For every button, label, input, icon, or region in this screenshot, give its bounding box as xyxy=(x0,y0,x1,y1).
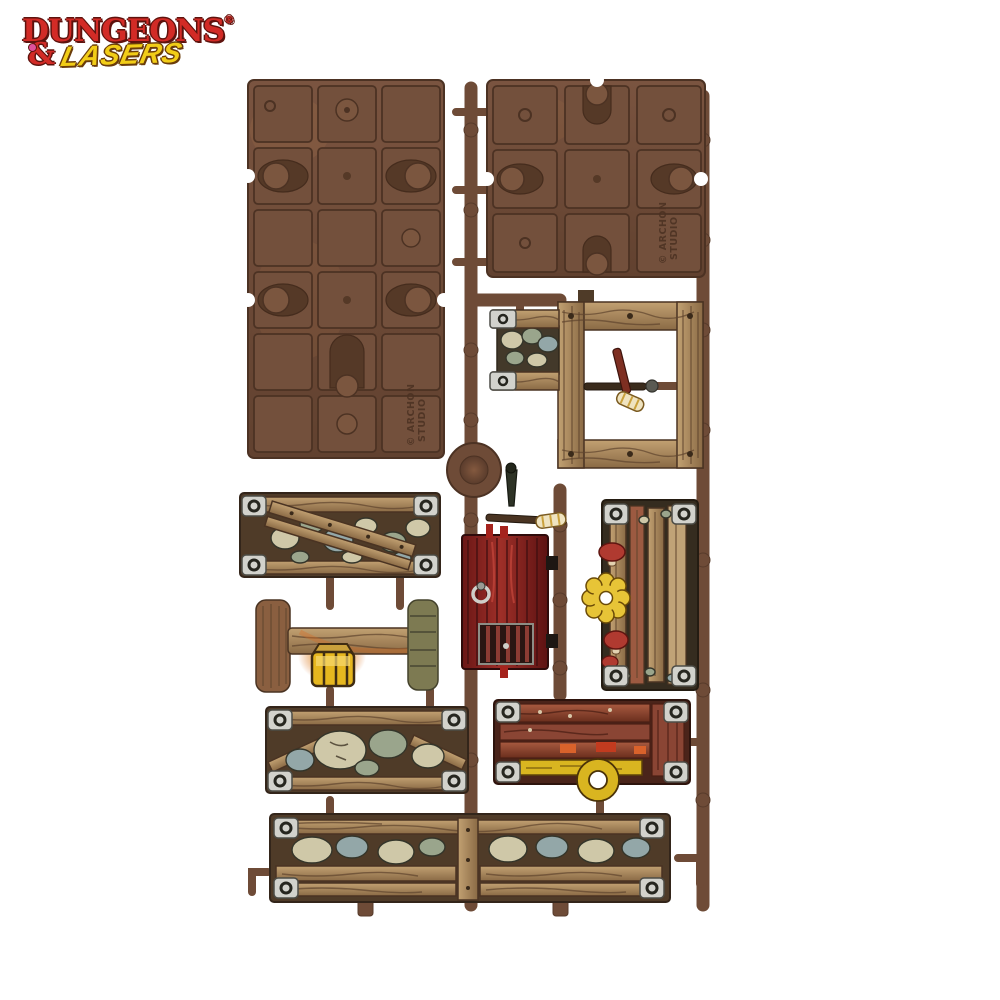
mold-text-line2: STUDIO xyxy=(669,216,680,260)
torch-piece xyxy=(584,348,658,413)
corner-bracket-icon xyxy=(274,878,298,898)
lantern-icon xyxy=(312,644,354,686)
red-clip xyxy=(486,524,493,538)
corner-bracket-icon xyxy=(496,762,520,782)
corner-bracket-icon xyxy=(442,771,466,791)
corner-bracket-icon xyxy=(640,818,664,838)
corner-bracket-icon xyxy=(672,504,696,524)
corner-bracket-icon xyxy=(604,666,628,686)
corner-bracket-icon xyxy=(496,702,520,722)
door-frame-piece xyxy=(490,290,703,468)
red-clip xyxy=(500,666,508,678)
mold-text-line2: STUDIO xyxy=(417,398,428,442)
ember-glint xyxy=(560,744,576,753)
ember-glint xyxy=(634,746,646,754)
mold-text-line1: © ARCHON xyxy=(406,384,417,446)
long-wall-piece xyxy=(270,814,670,902)
floor-tile-panel-large: © ARCHON STUDIO xyxy=(241,80,451,458)
mold-text-line1: © ARCHON xyxy=(658,202,669,264)
door-hinge xyxy=(546,634,558,648)
logo-ampersand: & xyxy=(28,40,55,70)
ember-glint xyxy=(596,742,616,752)
wall-section-stones xyxy=(266,707,468,793)
metal-plate-icon xyxy=(490,372,516,390)
gem-icon xyxy=(29,44,36,51)
logo-word2-text: LASERS xyxy=(58,39,185,71)
ampersand-text: & xyxy=(28,37,55,72)
product-photo: DUNGEONS® & LASERS xyxy=(0,0,1000,1000)
door-vent-grate xyxy=(479,624,533,664)
corner-bracket-icon xyxy=(268,771,292,791)
corner-bracket-icon xyxy=(442,710,466,730)
corner-bracket-icon xyxy=(672,666,696,686)
stone-filler-piece xyxy=(490,310,559,390)
floor-tile-panel-small: © ARCHON STUDIO xyxy=(480,73,708,277)
red-clip xyxy=(500,526,508,538)
mushroom-wall-piece xyxy=(582,500,698,690)
door-hinge xyxy=(546,556,558,570)
sprue-boss xyxy=(447,443,501,497)
wall-section-braced xyxy=(240,493,440,577)
registered-mark: ® xyxy=(224,15,233,26)
corner-bracket-icon xyxy=(604,504,628,524)
red-plank-wall-piece xyxy=(494,700,690,801)
corner-bracket-icon xyxy=(242,496,266,516)
lantern-beam-piece xyxy=(256,600,438,692)
yellow-ring-icon xyxy=(577,759,619,801)
corner-bracket-icon xyxy=(274,818,298,838)
corner-bracket-icon xyxy=(414,496,438,516)
corner-bracket-icon xyxy=(664,762,688,782)
sprue-illustration: © ARCHON STUDIO xyxy=(0,0,1000,1000)
yellow-mushroom-icon xyxy=(582,573,630,623)
corner-bracket-icon xyxy=(242,555,266,575)
corner-bracket-icon xyxy=(414,555,438,575)
corner-bracket-icon xyxy=(664,702,688,722)
corner-bracket-icon xyxy=(640,878,664,898)
corner-bracket-icon xyxy=(268,710,292,730)
metal-plate-icon xyxy=(490,310,516,328)
dungeons-and-lasers-logo: DUNGEONS® & LASERS xyxy=(22,16,252,70)
